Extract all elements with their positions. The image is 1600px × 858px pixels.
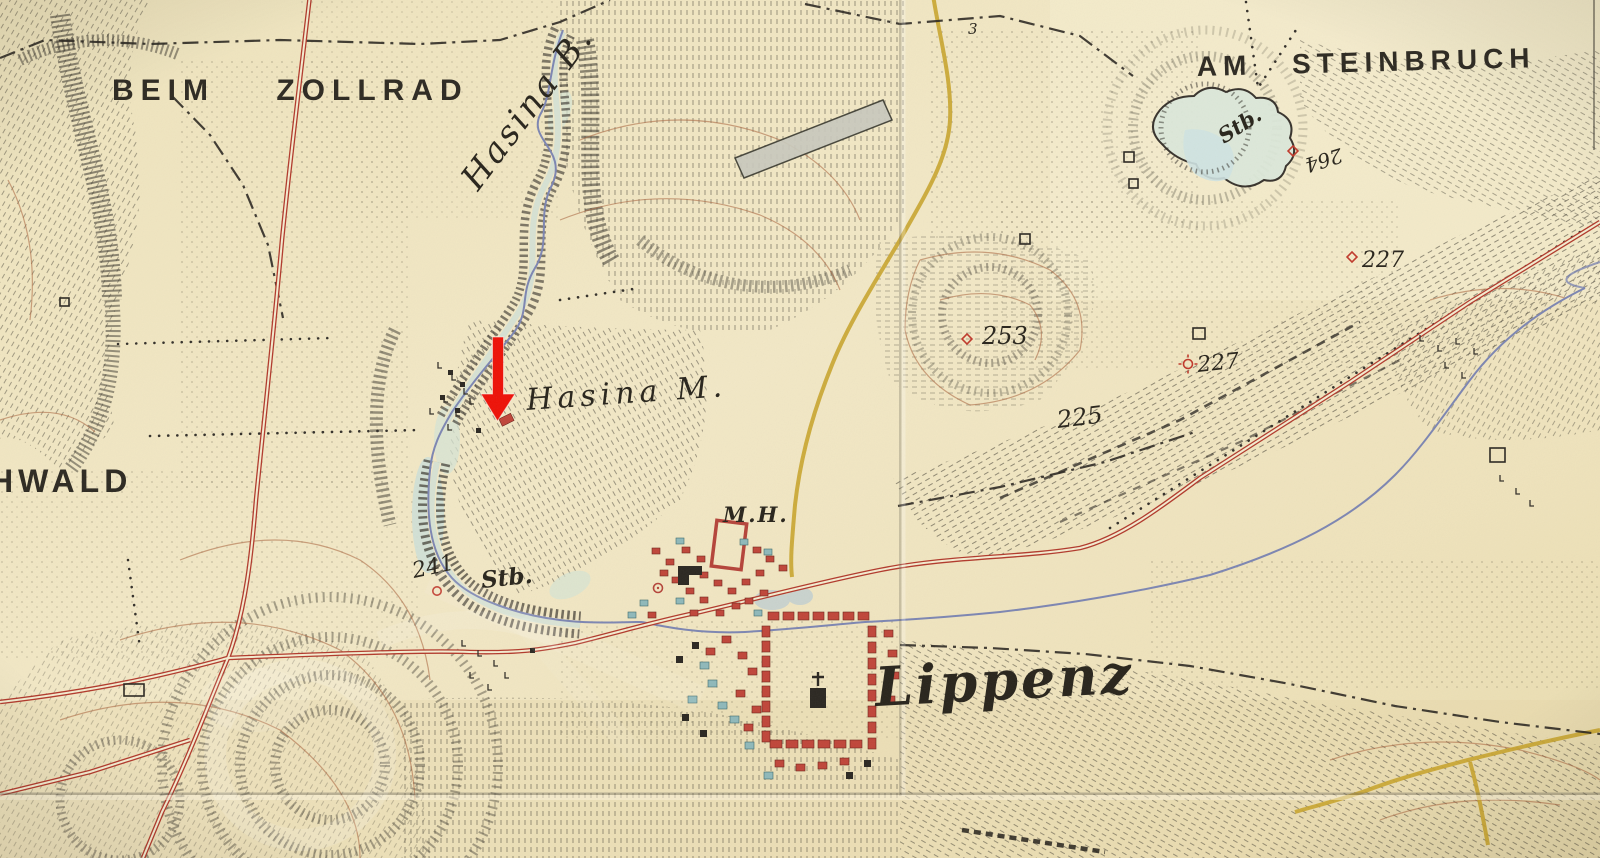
map-canvas[interactable]: BEIM ZOLLRAD AM STEINBRUCH Hasina B. Has… (0, 0, 1600, 858)
paper-grain (0, 0, 1600, 858)
